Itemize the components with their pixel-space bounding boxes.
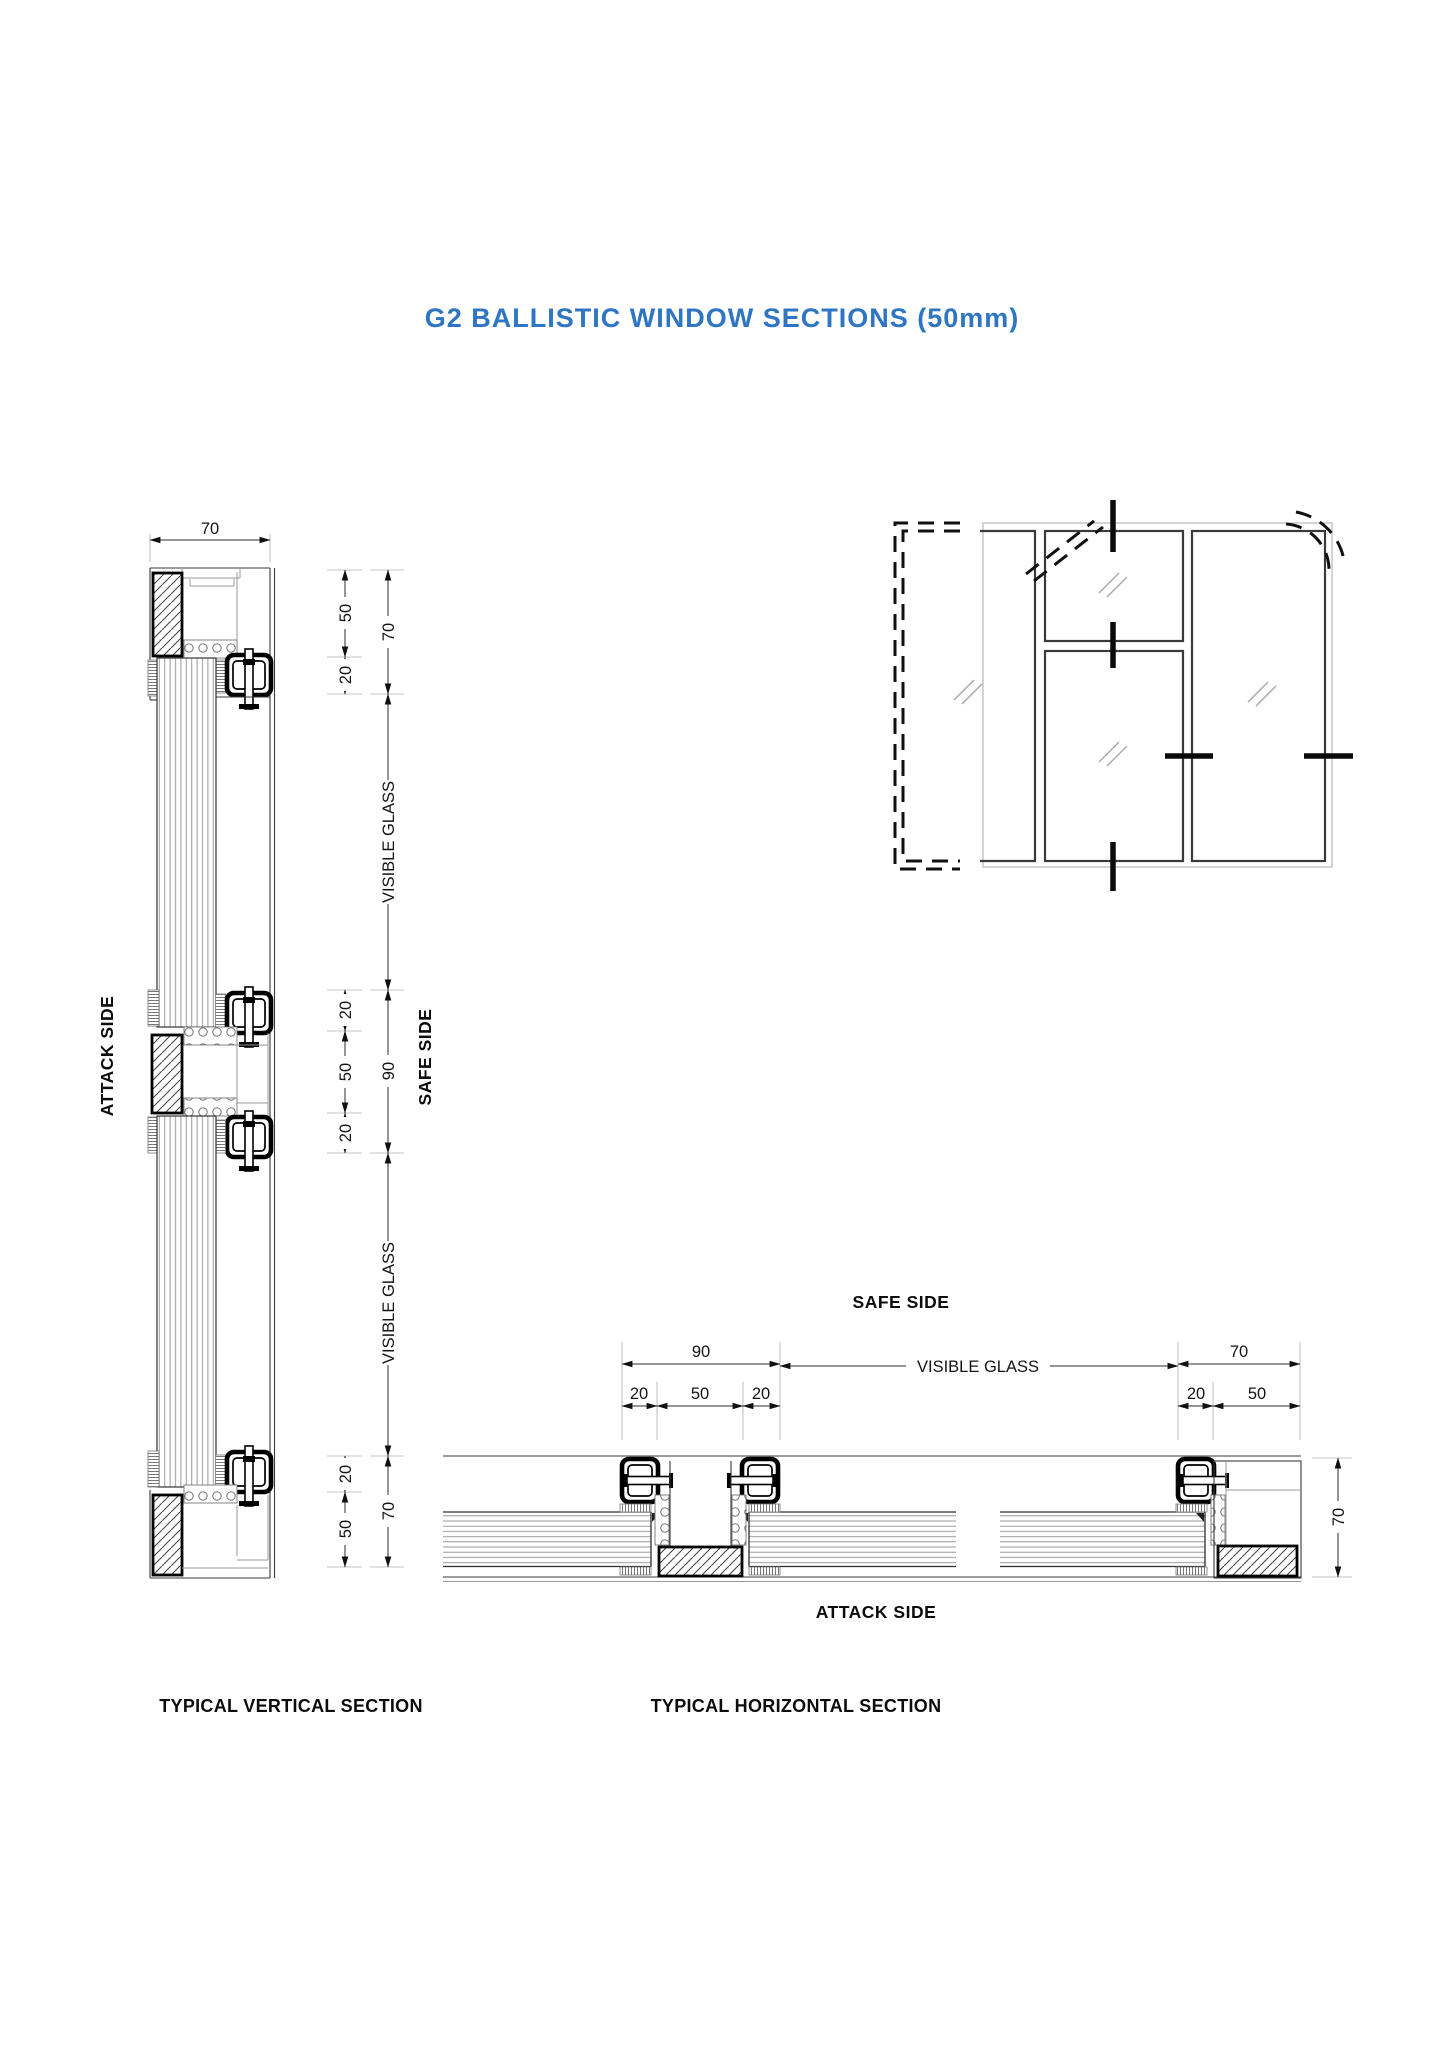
steel-insert xyxy=(1218,1546,1297,1576)
dim-mullion-overall: 90 xyxy=(692,1343,710,1361)
steel-insert xyxy=(659,1547,742,1576)
dim-transom-20b: 20 xyxy=(337,1124,355,1142)
horizontal-section: 90 20 50 20 VISIBLE GLASS 70 20 50 70 SA… xyxy=(443,1292,1352,1622)
dim-transom-overall: 90 xyxy=(380,1062,398,1080)
glass-unit-upper xyxy=(157,658,216,1027)
glass-unit-horizontal xyxy=(443,1512,1205,1567)
glazing-clamp xyxy=(227,1111,271,1171)
elevation-panel-right xyxy=(1192,531,1325,861)
dim-head-overall: 70 xyxy=(380,623,398,641)
gasket-strip xyxy=(1176,1567,1207,1575)
visible-glass-label: VISIBLE GLASS xyxy=(917,1358,1039,1376)
dim-mullion-50: 50 xyxy=(691,1385,709,1403)
exterior-gasket xyxy=(148,990,159,1026)
steel-insert xyxy=(153,573,182,656)
dim-head-width: 70 xyxy=(201,520,219,538)
visible-glass-upper-label: VISIBLE GLASS xyxy=(380,781,398,903)
dim-jamb-20: 20 xyxy=(1187,1385,1205,1403)
dim-sill-overall: 70 xyxy=(380,1502,398,1520)
dim-sill-50: 50 xyxy=(337,1520,355,1538)
safe-side-label-horizontal: SAFE SIDE xyxy=(853,1292,950,1312)
gasket-strip xyxy=(1176,1504,1207,1512)
safe-side-label: SAFE SIDE xyxy=(415,1009,435,1106)
interior-gasket xyxy=(216,994,226,1027)
elevation-panel-left xyxy=(980,531,1035,861)
glazing-gasket xyxy=(184,1098,237,1116)
interior-gasket xyxy=(216,1455,226,1488)
dim-frame-depth: 70 xyxy=(1330,1508,1348,1526)
gasket-strip xyxy=(749,1567,780,1575)
steel-insert xyxy=(152,1035,182,1113)
dim-head-20: 20 xyxy=(337,666,355,684)
drawing-sheet: { "title": { "text": "G2 BALLISTIC WINDO… xyxy=(0,0,1448,2048)
dim-head-50: 50 xyxy=(337,604,355,622)
glazing-gasket xyxy=(655,1495,669,1545)
dim-transom-50: 50 xyxy=(337,1063,355,1081)
dim-jamb-50: 50 xyxy=(1248,1385,1266,1403)
gasket-strip xyxy=(620,1567,651,1575)
attack-side-label-horizontal: ATTACK SIDE xyxy=(816,1602,937,1622)
glazing-clamp xyxy=(227,649,271,709)
dim-mullion-20a: 20 xyxy=(630,1385,648,1403)
caption-horizontal-section: TYPICAL HORIZONTAL SECTION xyxy=(651,1696,942,1716)
glazing-gasket xyxy=(184,1485,237,1503)
visible-glass-lower-label: VISIBLE GLASS xyxy=(380,1242,398,1364)
section-cut-marks xyxy=(1113,500,1353,891)
page-title: G2 BALLISTIC WINDOW SECTIONS (50mm) xyxy=(425,303,1020,333)
dim-mullion-20b: 20 xyxy=(752,1385,770,1403)
exterior-gasket xyxy=(148,1451,159,1487)
glass-symbol xyxy=(954,573,1276,766)
glazing-gasket xyxy=(184,1027,237,1045)
interior-gasket xyxy=(216,1120,226,1153)
dim-transom-20a: 20 xyxy=(337,1001,355,1019)
gasket-strip xyxy=(749,1504,780,1512)
elevation-dashed-opening xyxy=(895,523,960,869)
elevation-panel-bottom-middle xyxy=(1045,651,1183,861)
window-elevation xyxy=(895,500,1353,891)
glass-unit-lower xyxy=(157,1116,216,1487)
caption-vertical-section: TYPICAL VERTICAL SECTION xyxy=(159,1696,423,1716)
technical-drawing: G2 BALLISTIC WINDOW SECTIONS (50mm) xyxy=(0,0,1448,2048)
glazing-gasket xyxy=(1211,1495,1225,1545)
steel-insert xyxy=(153,1495,182,1575)
interior-gasket xyxy=(216,660,226,693)
vertical-section: 70 50 xyxy=(97,520,435,1578)
glazing-gasket xyxy=(732,1495,746,1545)
dim-sill-20: 20 xyxy=(337,1465,355,1483)
dim-jamb-overall: 70 xyxy=(1230,1343,1248,1361)
gasket-strip xyxy=(620,1504,651,1512)
attack-side-label: ATTACK SIDE xyxy=(97,996,117,1117)
